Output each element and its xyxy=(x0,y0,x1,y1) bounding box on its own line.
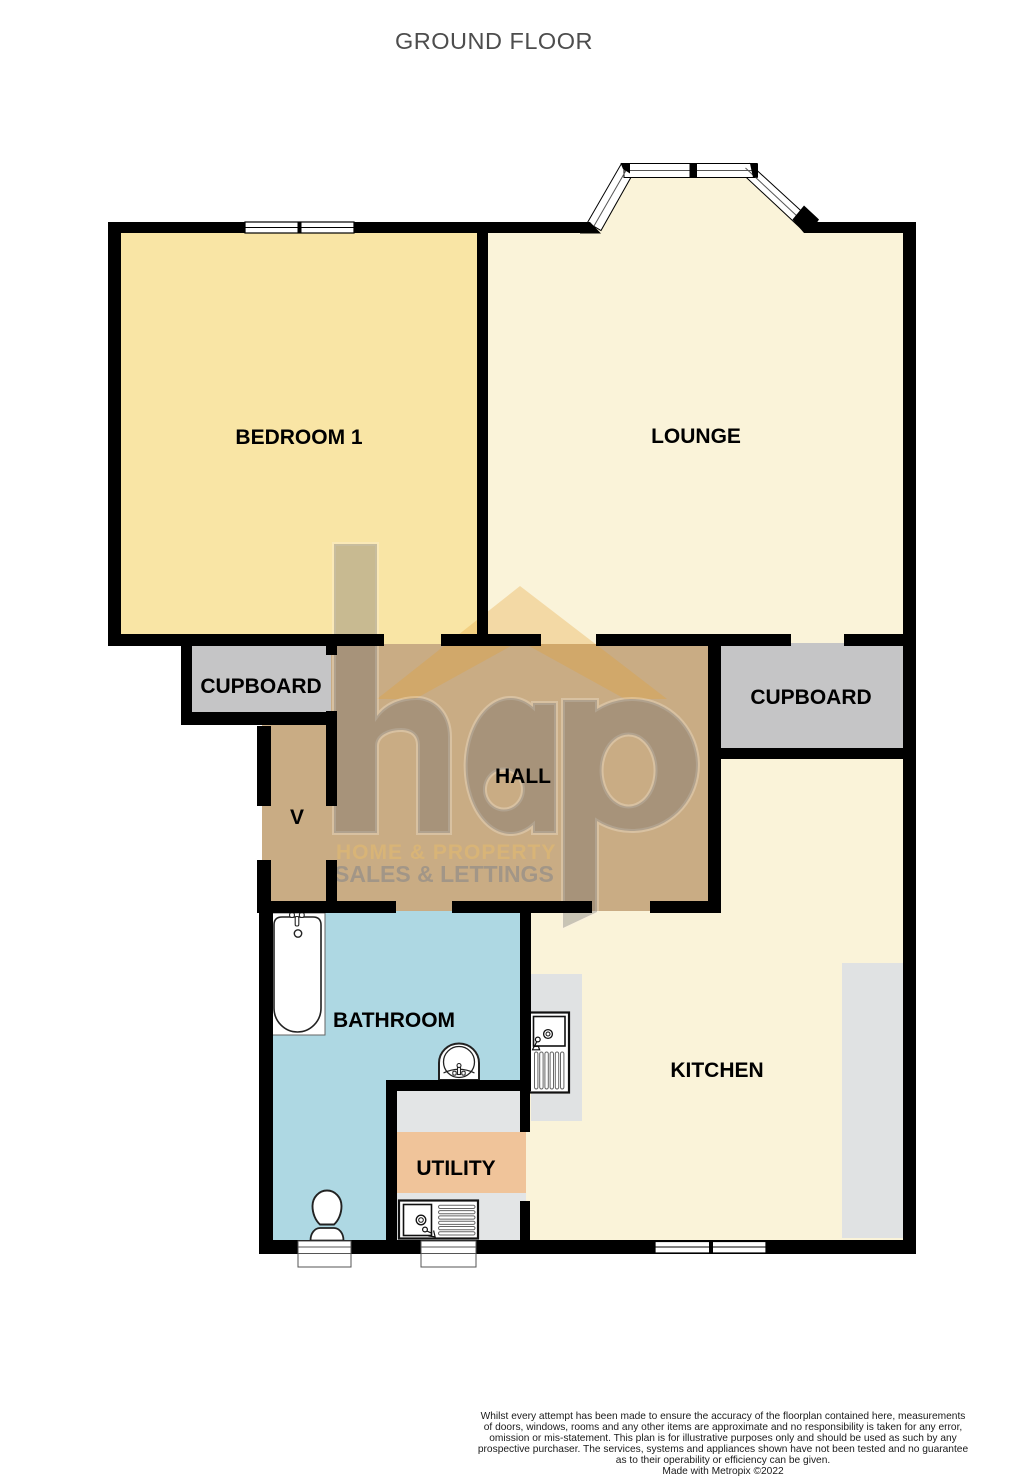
svg-text:omission or mis-statement. Thi: omission or mis-statement. This plan is … xyxy=(489,1433,957,1444)
svg-text:V: V xyxy=(290,806,304,829)
svg-text:of doors, windows, rooms and a: of doors, windows, rooms and any other i… xyxy=(484,1422,962,1433)
svg-text:prospective purchaser. The ser: prospective purchaser. The services, sys… xyxy=(478,1444,969,1455)
svg-text:as to their operability or eff: as to their operability or efficiency ca… xyxy=(616,1455,830,1466)
svg-text:KITCHEN: KITCHEN xyxy=(670,1059,763,1082)
svg-text:BEDROOM 1: BEDROOM 1 xyxy=(235,426,363,449)
svg-text:SALES & LETTINGS: SALES & LETTINGS xyxy=(334,861,554,887)
svg-text:CUPBOARD: CUPBOARD xyxy=(200,675,321,698)
svg-text:Made with Metropix ©2022: Made with Metropix ©2022 xyxy=(662,1466,784,1477)
svg-text:CUPBOARD: CUPBOARD xyxy=(750,686,871,709)
svg-text:UTILITY: UTILITY xyxy=(416,1157,495,1180)
svg-text:LOUNGE: LOUNGE xyxy=(651,425,741,448)
svg-text:HALL: HALL xyxy=(495,765,551,788)
svg-text:Whilst every attempt has been: Whilst every attempt has been made to en… xyxy=(481,1411,966,1422)
svg-text:BATHROOM: BATHROOM xyxy=(333,1009,455,1032)
svg-text:GROUND FLOOR: GROUND FLOOR xyxy=(395,28,593,54)
